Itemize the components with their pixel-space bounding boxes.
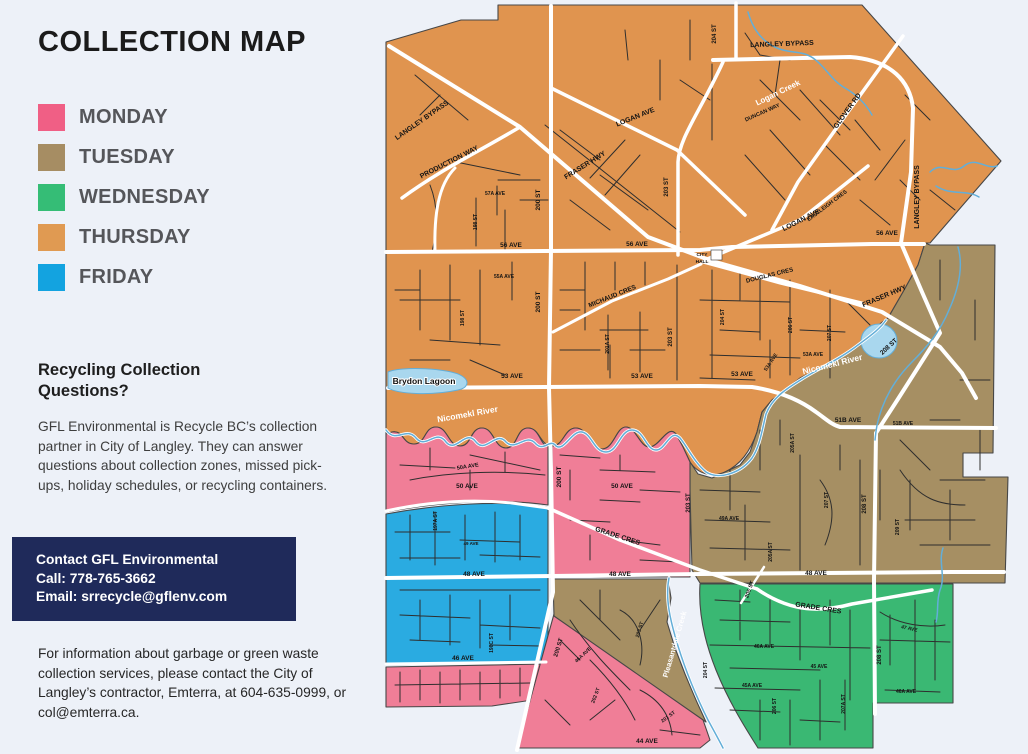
legend-label-tuesday: TUESDAY [79,146,175,169]
map-label: 48 AVE [805,570,827,577]
map-label: 205A ST [768,542,774,562]
map-label: 201A ST [605,334,611,354]
page-title: COLLECTION MAP [38,26,306,59]
zone-monday-strip [386,664,546,707]
map-label: LANGLEY BYPASS [914,165,921,229]
legend-swatch-friday [38,264,65,291]
map-label: 203 ST [664,177,670,197]
map-label: 208 ST [877,645,883,665]
map-label: 48 AVE [609,571,631,578]
map-label: 197A ST [433,511,439,531]
map-label: 51B AVE [893,421,914,427]
map-label: 203 ST [668,327,674,347]
map-label: HALL [696,259,709,265]
collection-map-page: 204 STLANGLEY BYPASSGLOVER RDDUNCAN WAYL… [0,0,1028,754]
map-label: 198 ST [460,310,466,326]
contact-email: Email: srrecycle@gflenv.com [36,588,296,607]
map-label: CITY [697,252,709,258]
map-label: 206 ST [788,317,794,333]
contact-phone: Call: 778-765-3662 [36,570,296,589]
legend-row-thursday: THURSDAY [38,223,191,251]
map-label: 53 AVE [501,373,523,380]
legend-row-friday: FRIDAY [38,263,153,291]
legend-label-friday: FRIDAY [79,266,153,289]
map-label: 51B AVE [835,417,862,424]
city-hall-icon [711,250,722,260]
legend-swatch-tuesday [38,144,65,171]
map-label: 49A AVE [719,516,740,522]
map-label: 198C ST [489,633,495,653]
map-label: 55A AVE [494,274,515,280]
legend-row-monday: MONDAY [38,103,168,131]
map-label: 205A ST [790,433,796,453]
legend-label-thursday: THURSDAY [79,226,191,249]
map-label: 57A AVE [485,191,506,197]
map-label: 209 ST [895,519,901,535]
map-label: 46A AVE [896,689,917,695]
map-label: 45 AVE [811,664,828,670]
map-label: 48 AVE [463,571,485,578]
map-label: 200 ST [535,291,542,312]
legend-swatch-monday [38,104,65,131]
map-label: 203 ST [686,493,692,513]
map-label: 206 ST [772,698,778,714]
garbage-info-text: For information about garbage or green w… [38,644,350,722]
map-label: 207 ST [824,492,830,508]
map-label: 200 ST [556,466,563,487]
legend-label-monday: MONDAY [79,106,168,129]
map-label: 208 ST [862,494,868,514]
zone-monday-center [552,427,690,577]
map-label: 44 AVE [636,738,658,745]
map-label: 46A AVE [754,644,775,650]
map-label: 53 AVE [631,373,653,380]
recycling-questions-heading: Recycling Collection Questions? [38,360,288,402]
map-label: 207 ST [827,325,833,341]
contact-box: Contact GFL Environmental Call: 778-765-… [12,537,296,621]
contact-title: Contact GFL Environmental [36,551,296,570]
map-label: 56 AVE [500,242,522,249]
map-label: 46 AVE [452,655,474,662]
map-label: 56 AVE [626,241,648,248]
recycling-questions-body: GFL Environmental is Recycle BC’s collec… [38,417,340,495]
map-label: 50 AVE [456,483,478,490]
map-label: 204 ST [703,662,709,678]
road-46-ave [386,662,546,664]
map-label: 50 AVE [611,483,633,490]
map-label: 207A ST [841,694,847,714]
map-label: 56 AVE [876,230,898,237]
map-label: 198 ST [473,214,479,230]
map-label: 53 AVE [731,371,753,378]
map-label: 53A AVE [803,352,824,358]
map-label: 49 AVE [463,541,478,546]
map-label: 200 ST [535,189,542,210]
legend-swatch-thursday [38,224,65,251]
legend-swatch-wednesday [38,184,65,211]
legend-row-wednesday: WEDNESDAY [38,183,210,211]
map-label: 45A AVE [742,683,763,689]
legend-label-wednesday: WEDNESDAY [79,186,210,209]
map-label: 204 ST [712,24,718,44]
map-label: Brydon Lagoon [393,376,456,386]
legend-row-tuesday: TUESDAY [38,143,175,171]
map-label: 204 ST [720,309,726,325]
